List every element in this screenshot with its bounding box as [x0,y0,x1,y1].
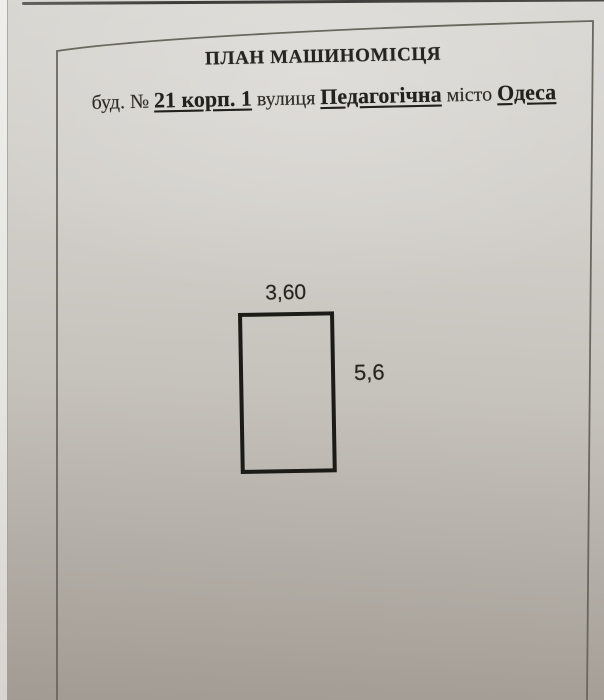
building-number: 21 корп. 1 [154,86,252,113]
parking-space-plan: 3,60 5,6 [238,311,337,474]
height-dimension-label: 5,6 [354,359,385,386]
document-photo-background: ПЛАН МАШИНОМІСЦЯ буд. № 21 корп. 1 вулиц… [0,0,604,700]
street-label: вулиця [257,87,316,110]
width-dimension-label: 3,60 [237,280,333,306]
building-label: буд. № [91,91,149,114]
city-label: місто [446,83,492,106]
document-header: ПЛАН МАШИНОМІСЦЯ буд. № 21 корп. 1 вулиц… [56,40,590,115]
city-name: Одеса [497,79,557,105]
street-name: Педагогічна [320,82,442,110]
parking-space-rectangle [238,311,337,474]
